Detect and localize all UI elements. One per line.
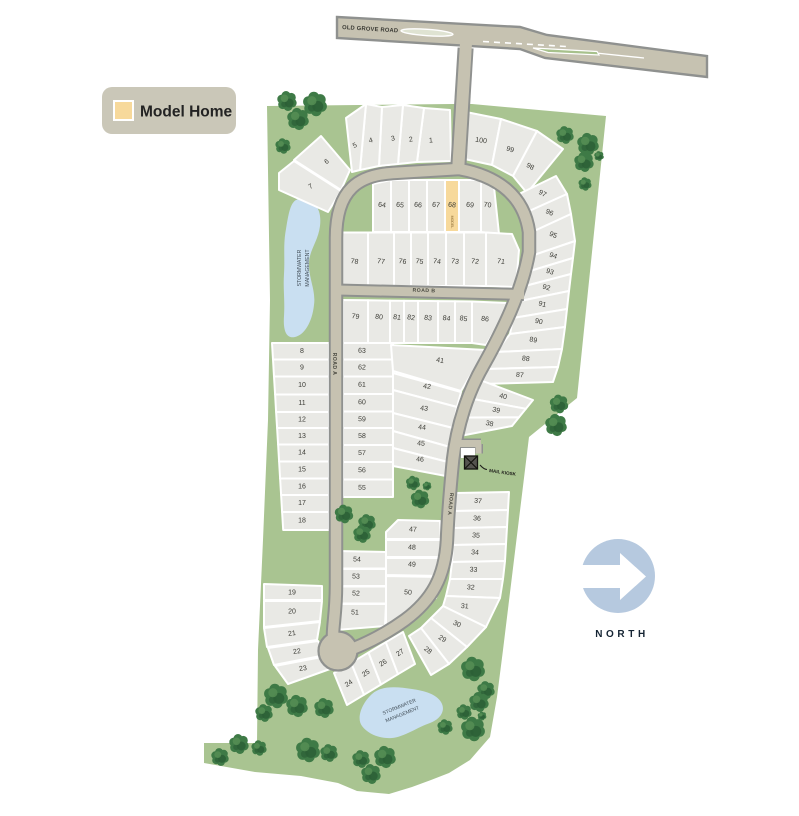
- svg-text:80: 80: [375, 313, 384, 321]
- svg-text:42: 42: [423, 383, 432, 391]
- svg-text:86: 86: [481, 316, 490, 324]
- svg-text:22: 22: [293, 648, 302, 656]
- svg-text:50: 50: [404, 589, 412, 596]
- svg-text:23: 23: [299, 665, 308, 673]
- svg-text:32: 32: [467, 584, 475, 592]
- svg-text:33: 33: [469, 566, 477, 574]
- svg-text:48: 48: [408, 544, 416, 551]
- svg-text:83: 83: [424, 314, 433, 322]
- svg-text:18: 18: [298, 518, 306, 525]
- svg-text:79: 79: [351, 313, 360, 321]
- svg-text:61: 61: [358, 382, 366, 389]
- svg-text:62: 62: [358, 364, 366, 371]
- svg-text:MODEL: MODEL: [450, 216, 454, 229]
- svg-text:71: 71: [497, 258, 506, 266]
- svg-text:63: 63: [358, 348, 366, 355]
- svg-text:17: 17: [298, 500, 306, 507]
- svg-text:59: 59: [358, 416, 366, 423]
- svg-text:36: 36: [473, 515, 481, 523]
- svg-text:75: 75: [415, 258, 424, 266]
- svg-text:31: 31: [461, 603, 469, 611]
- svg-text:15: 15: [298, 467, 306, 474]
- svg-text:45: 45: [417, 440, 425, 448]
- svg-text:10: 10: [298, 382, 306, 389]
- svg-text:46: 46: [416, 456, 424, 463]
- svg-text:77: 77: [377, 258, 386, 266]
- svg-text:76: 76: [398, 258, 407, 266]
- svg-text:70: 70: [483, 201, 492, 209]
- svg-text:35: 35: [472, 532, 480, 540]
- svg-text:74: 74: [433, 258, 442, 266]
- svg-text:MANAGEMENT: MANAGEMENT: [305, 249, 311, 287]
- svg-text:81: 81: [393, 314, 402, 322]
- svg-text:84: 84: [442, 315, 451, 323]
- svg-text:9: 9: [300, 365, 304, 372]
- svg-text:34: 34: [471, 549, 479, 557]
- svg-text:44: 44: [418, 424, 426, 432]
- svg-text:64: 64: [378, 201, 387, 209]
- svg-text:57: 57: [358, 450, 366, 457]
- svg-text:73: 73: [451, 258, 460, 266]
- svg-text:47: 47: [409, 526, 417, 533]
- svg-text:STORMWATER: STORMWATER: [297, 249, 303, 286]
- svg-text:16: 16: [298, 483, 306, 490]
- svg-text:67: 67: [432, 201, 441, 209]
- svg-text:ROAD A: ROAD A: [331, 353, 337, 376]
- svg-text:56: 56: [358, 467, 366, 474]
- svg-text:13: 13: [298, 433, 306, 440]
- svg-text:55: 55: [358, 485, 366, 492]
- svg-text:72: 72: [471, 258, 480, 266]
- svg-text:14: 14: [298, 450, 306, 457]
- svg-text:43: 43: [420, 405, 429, 413]
- svg-text:85: 85: [459, 315, 468, 323]
- svg-text:51: 51: [351, 609, 359, 616]
- svg-text:ROAD B: ROAD B: [412, 288, 435, 295]
- svg-text:53: 53: [352, 573, 360, 580]
- svg-text:65: 65: [396, 201, 405, 209]
- svg-text:89: 89: [529, 336, 538, 344]
- svg-text:68: 68: [448, 201, 457, 209]
- svg-text:69: 69: [466, 201, 475, 209]
- svg-text:8: 8: [300, 348, 304, 355]
- svg-text:21: 21: [288, 630, 297, 638]
- svg-text:11: 11: [298, 400, 305, 407]
- svg-text:88: 88: [521, 355, 530, 363]
- svg-text:58: 58: [358, 433, 366, 440]
- svg-text:52: 52: [352, 590, 360, 597]
- svg-text:54: 54: [353, 556, 361, 563]
- svg-text:82: 82: [407, 314, 416, 322]
- svg-text:37: 37: [474, 498, 482, 506]
- svg-text:49: 49: [408, 561, 416, 568]
- svg-text:NORTH: NORTH: [595, 629, 649, 640]
- svg-text:60: 60: [358, 399, 366, 406]
- svg-text:66: 66: [414, 201, 423, 209]
- svg-text:87: 87: [516, 372, 525, 380]
- svg-text:78: 78: [350, 258, 359, 266]
- svg-text:Model Home: Model Home: [140, 104, 233, 121]
- svg-text:1: 1: [429, 137, 433, 144]
- svg-text:20: 20: [288, 609, 296, 616]
- svg-text:19: 19: [288, 590, 296, 597]
- svg-text:41: 41: [436, 357, 445, 365]
- svg-text:12: 12: [298, 417, 306, 424]
